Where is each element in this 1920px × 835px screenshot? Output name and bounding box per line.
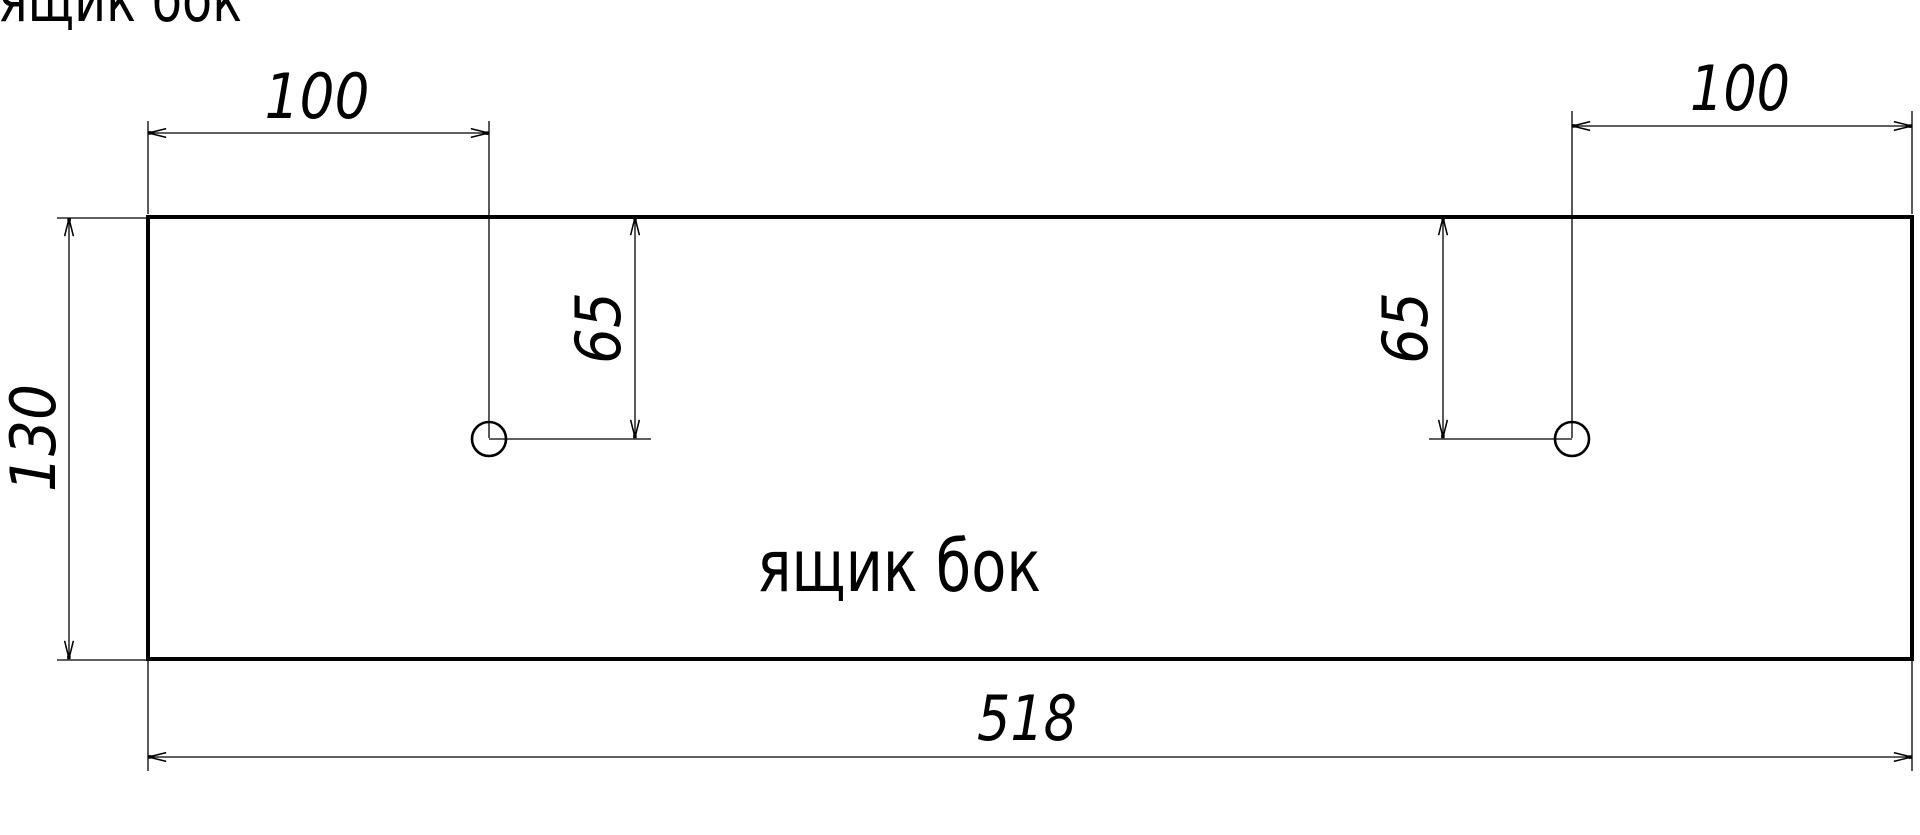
dimension-value: 65: [1369, 292, 1442, 364]
dimension-value: 100: [265, 60, 370, 133]
dimension-value: 65: [562, 292, 635, 364]
part-label: ящик бок: [757, 524, 1041, 608]
dim-top-right-offset: 100: [1572, 52, 1912, 438]
dim-left-hole-drop: 65: [489, 217, 651, 439]
dimension-value: 518: [977, 682, 1077, 755]
dim-total-width: 518: [148, 661, 1912, 771]
drawing-canvas: ящик бок ящик бок 100 100 65: [0, 0, 1920, 835]
dimension-value: 100: [1690, 52, 1790, 125]
dim-right-hole-drop: 65: [1369, 217, 1572, 439]
dim-side-height: 130: [0, 218, 146, 660]
dimension-value: 130: [0, 384, 70, 492]
dim-top-left-offset: 100: [148, 60, 489, 438]
sheet-title: ящик бок: [0, 0, 242, 36]
technical-drawing: ящик бок ящик бок 100 100 65: [0, 0, 1920, 835]
